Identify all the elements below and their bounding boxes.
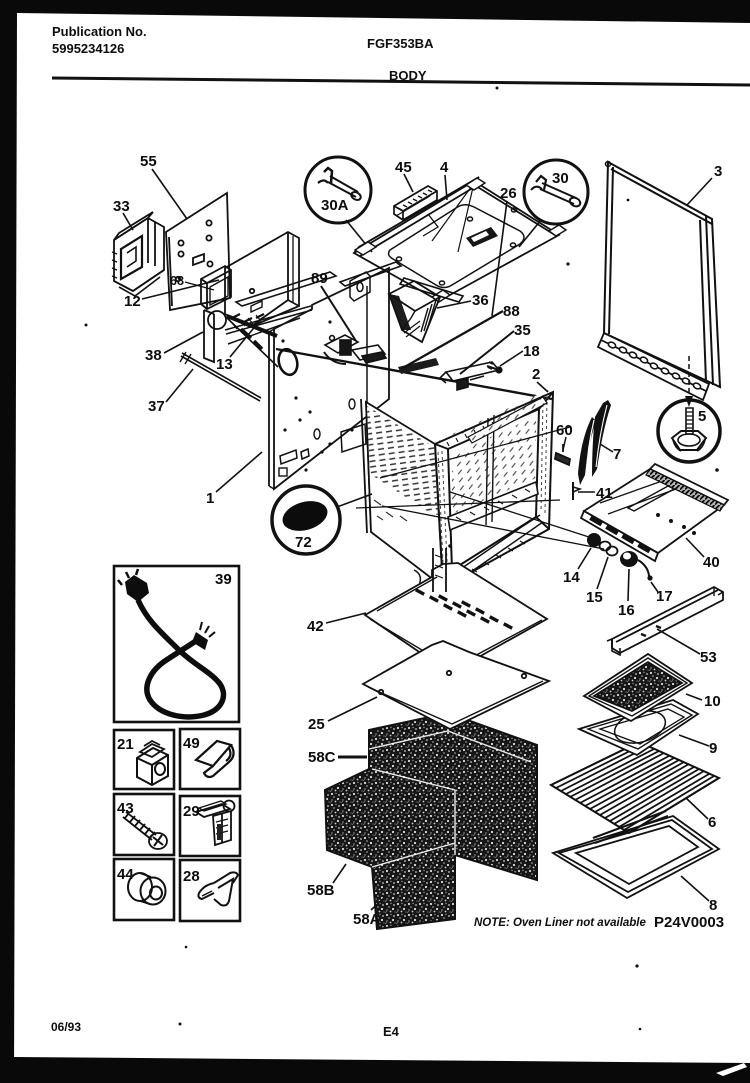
svg-text:60: 60 [556, 422, 573, 439]
svg-text:16: 16 [618, 602, 635, 619]
svg-text:1: 1 [206, 490, 214, 507]
svg-text:3: 3 [714, 163, 722, 180]
svg-text:6: 6 [708, 814, 716, 831]
svg-text:21: 21 [117, 736, 134, 753]
svg-text:43: 43 [117, 800, 134, 817]
svg-text:45: 45 [395, 159, 412, 176]
svg-text:68: 68 [170, 274, 184, 288]
svg-text:33: 33 [113, 198, 130, 215]
svg-text:37: 37 [148, 398, 165, 415]
svg-text:30A: 30A [321, 197, 349, 214]
svg-text:38: 38 [145, 347, 162, 364]
svg-text:18: 18 [523, 343, 540, 360]
svg-text:89: 89 [311, 270, 328, 287]
svg-text:12: 12 [124, 293, 141, 310]
svg-text:06/93: 06/93 [51, 1020, 81, 1034]
svg-text:30: 30 [552, 170, 569, 187]
svg-text:2: 2 [532, 366, 540, 383]
svg-text:Publication No.: Publication No. [52, 24, 147, 39]
svg-text:58B: 58B [307, 882, 335, 899]
svg-text:29: 29 [183, 803, 200, 820]
svg-text:58A: 58A [353, 911, 381, 928]
svg-text:42: 42 [307, 618, 324, 635]
svg-text:9: 9 [709, 740, 717, 757]
svg-text:25: 25 [308, 716, 325, 733]
svg-text:13: 13 [216, 356, 233, 373]
svg-text:40: 40 [703, 554, 720, 571]
svg-text:49: 49 [183, 735, 200, 752]
svg-text:17: 17 [656, 588, 673, 605]
svg-text:10: 10 [704, 693, 721, 710]
svg-text:5995234126: 5995234126 [52, 41, 124, 56]
svg-text:39: 39 [215, 571, 232, 588]
svg-text:8: 8 [709, 897, 717, 914]
svg-text:36: 36 [472, 292, 489, 309]
svg-text:P24V0003: P24V0003 [654, 914, 724, 931]
svg-text:35: 35 [514, 322, 531, 339]
svg-text:53: 53 [700, 649, 717, 666]
svg-text:NOTE: Oven Liner not available: NOTE: Oven Liner not available [474, 917, 647, 929]
svg-text:44: 44 [117, 866, 134, 883]
svg-text:14: 14 [563, 569, 580, 586]
svg-text:26: 26 [500, 185, 517, 202]
svg-text:15: 15 [586, 589, 603, 606]
svg-text:5: 5 [698, 408, 706, 425]
svg-text:4: 4 [440, 159, 449, 176]
svg-text:FGF353BA: FGF353BA [367, 36, 434, 51]
svg-text:55: 55 [140, 153, 157, 170]
svg-text:88: 88 [503, 303, 520, 320]
svg-text:E4: E4 [383, 1024, 400, 1039]
svg-text:72: 72 [295, 534, 312, 551]
svg-text:28: 28 [183, 868, 200, 885]
svg-text:7: 7 [613, 446, 621, 463]
svg-text:58C: 58C [308, 749, 336, 766]
